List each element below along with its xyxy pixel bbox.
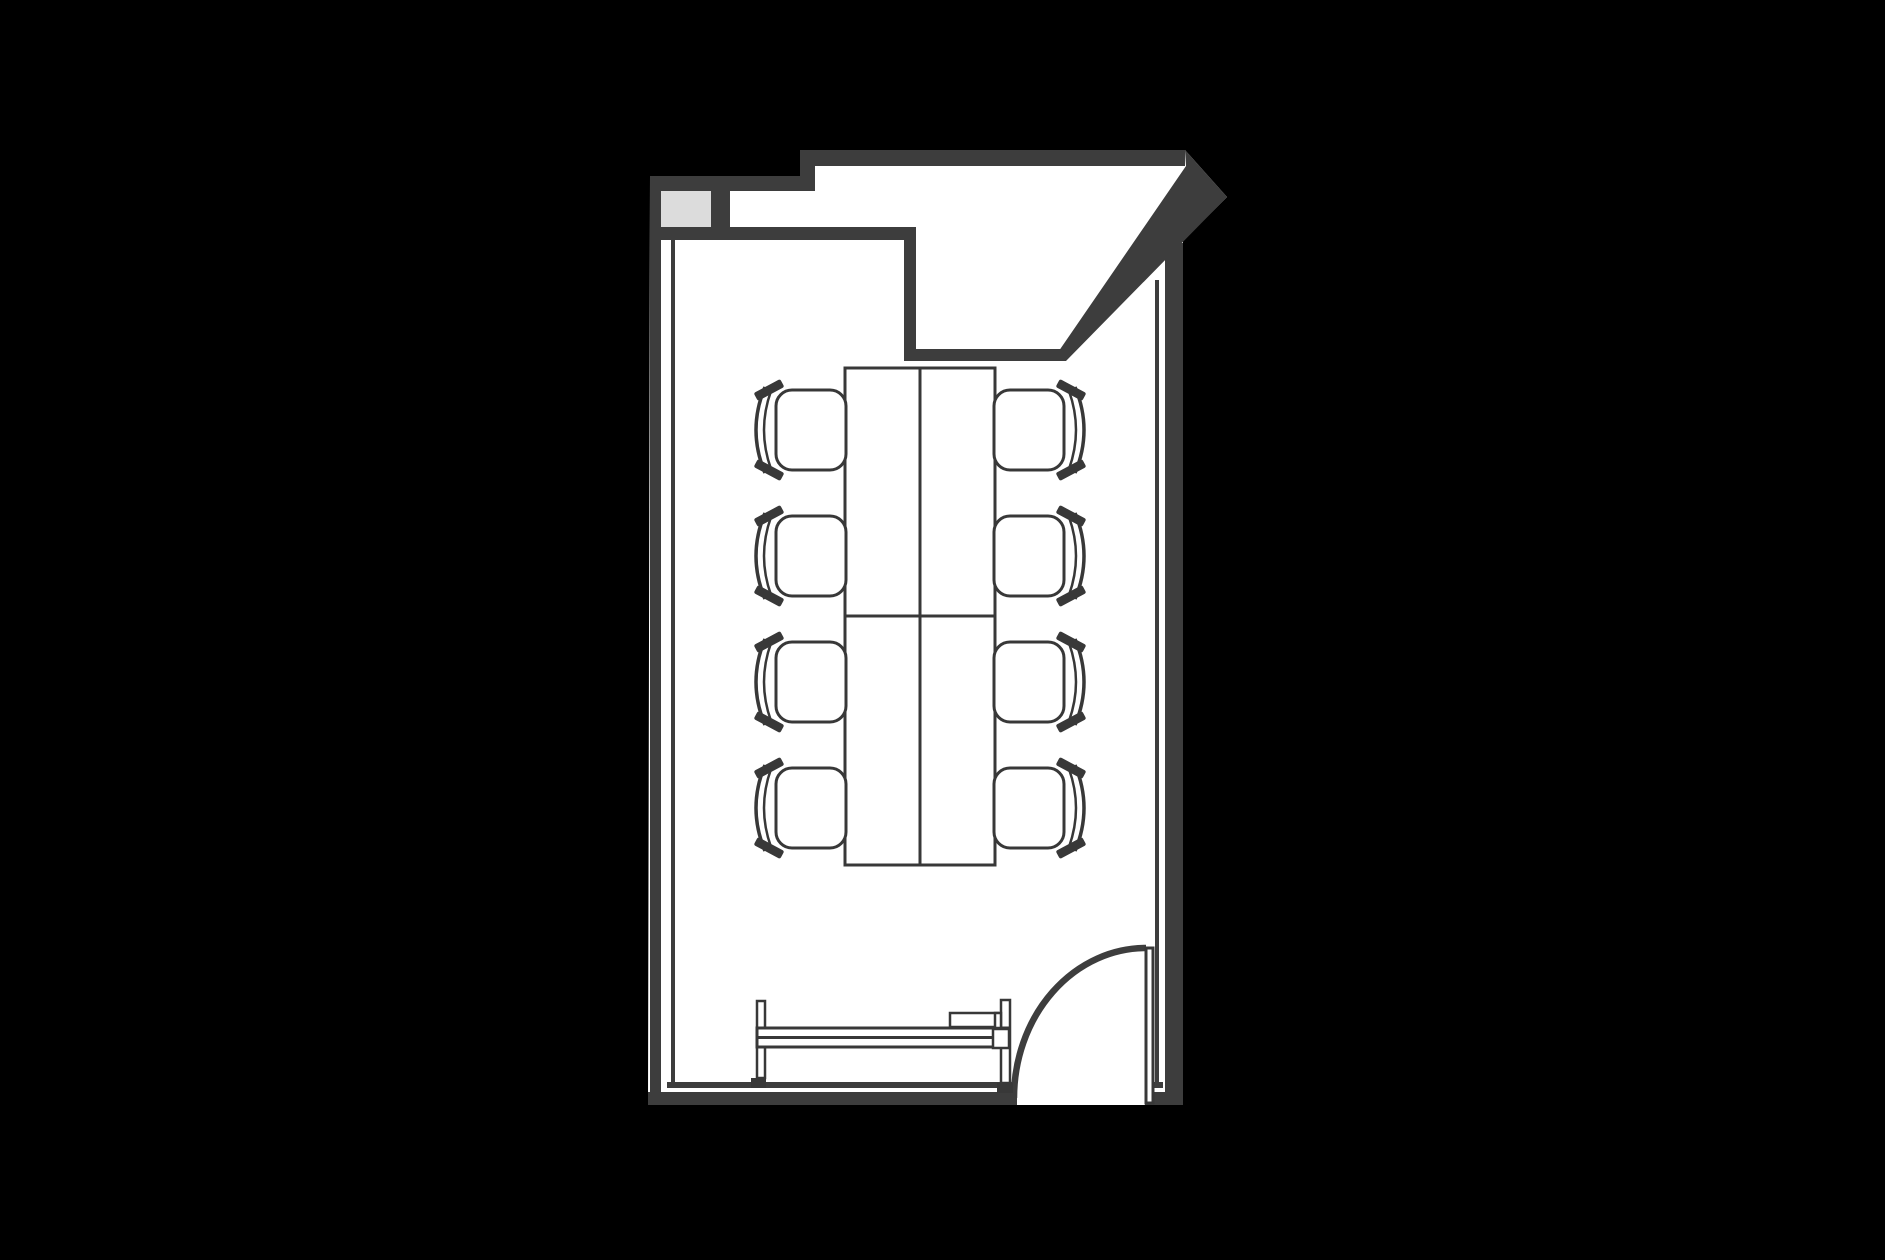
credenza-foot-right: [997, 1083, 1013, 1093]
chair-seat: [776, 516, 846, 596]
floor-plan-canvas: [0, 0, 1885, 1260]
bottom-wall-inner-line: [667, 1082, 1013, 1088]
top-wall: [800, 150, 1185, 166]
credenza-foot-left: [751, 1078, 766, 1088]
credenza-top-box-divider: [995, 1013, 1001, 1028]
vestibule-step-wall-horizontal: [904, 349, 1066, 361]
left-wall-inner-line: [671, 239, 675, 1088]
chair-seat: [776, 768, 846, 848]
bottom-wall-left: [648, 1092, 1017, 1105]
inner-top-wall: [650, 227, 916, 240]
chair-seat: [994, 516, 1064, 596]
credenza-top-box: [950, 1013, 998, 1027]
credenza-end-box: [993, 1029, 1009, 1048]
left-wall: [650, 176, 661, 1105]
top-left-wall: [650, 176, 815, 191]
right-wall-inner-line: [1155, 280, 1159, 1088]
conference-table: [845, 368, 995, 865]
floor-plan-svg: [0, 0, 1885, 1260]
chair-seat: [994, 390, 1064, 470]
right-wall: [1165, 243, 1183, 1105]
chair-seat: [776, 642, 846, 722]
column-stub-wall: [711, 176, 730, 240]
vestibule-step-wall-vertical: [904, 228, 916, 361]
chair-seat: [994, 768, 1064, 848]
chair-seat: [776, 390, 846, 470]
chair-seat: [994, 642, 1064, 722]
door-leaf: [1146, 948, 1153, 1103]
